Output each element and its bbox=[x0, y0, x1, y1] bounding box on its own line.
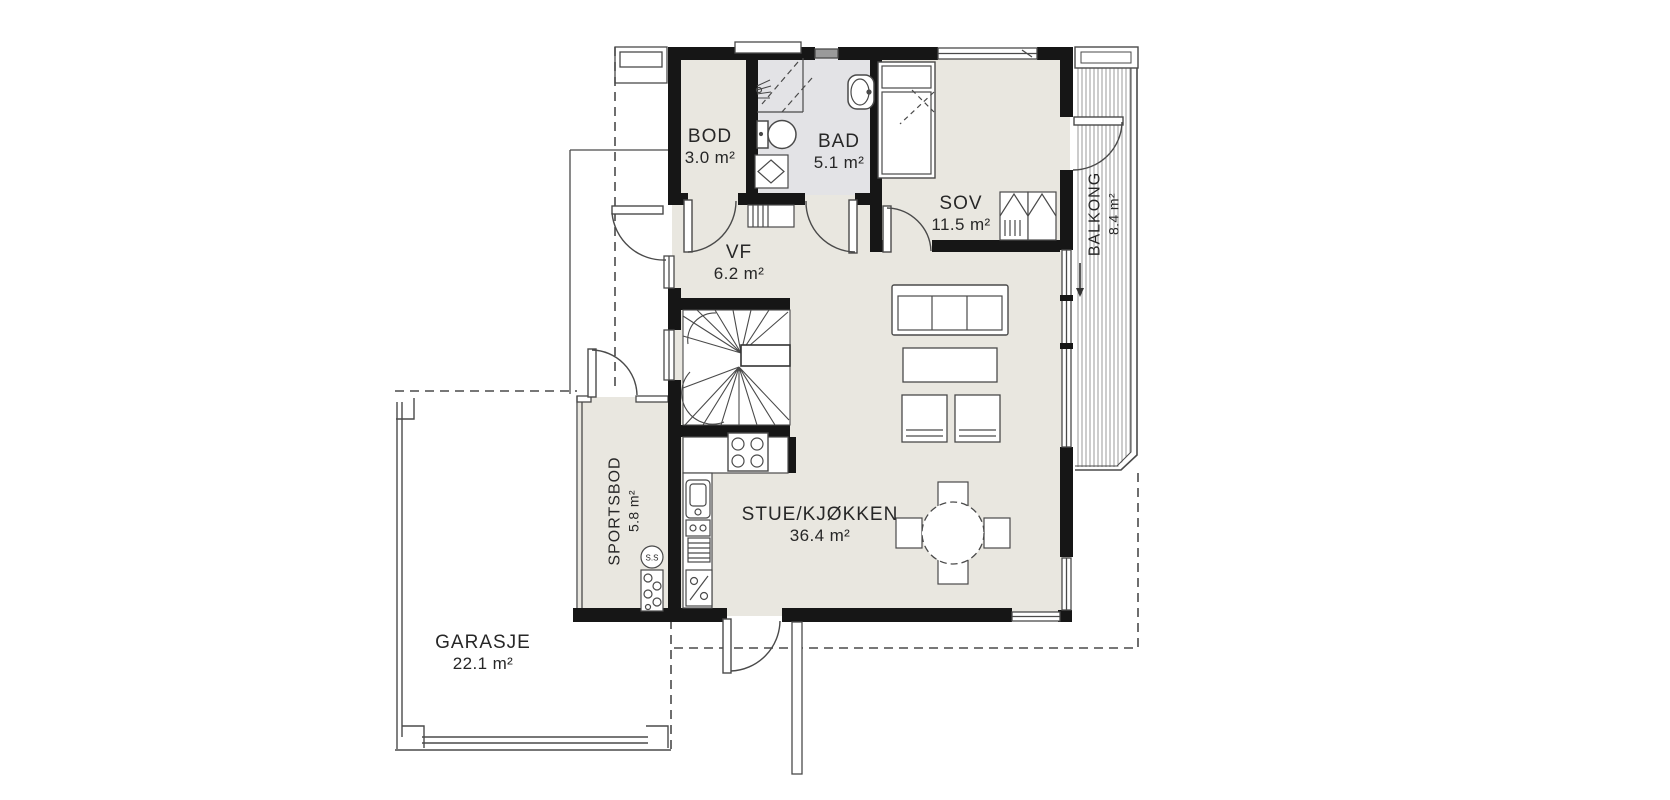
floor-plan-canvas: S.S BOD 3.0 m² BAD 5.1 m² SOV 11.5 m² VF… bbox=[0, 0, 1670, 800]
hall-cabinet bbox=[748, 205, 794, 227]
room-label-stue-kjokken: STUE/KJØKKEN 36.4 m² bbox=[742, 504, 899, 546]
staircase bbox=[682, 310, 790, 425]
room-label-balkong: BALKONG 8.4 m² bbox=[1086, 172, 1121, 256]
coffee-table bbox=[903, 348, 997, 382]
bed bbox=[878, 62, 935, 178]
floor-plan-drawing: S.S bbox=[0, 0, 1670, 800]
entry-sidelight-window bbox=[664, 256, 674, 288]
armchair-left bbox=[902, 395, 947, 442]
oven-unit bbox=[686, 570, 712, 606]
entry-door bbox=[612, 206, 666, 260]
armchair-right bbox=[955, 395, 1000, 442]
living-south-window bbox=[1012, 612, 1060, 621]
sofa bbox=[892, 285, 1008, 335]
stair-window bbox=[664, 330, 674, 380]
room-label-bod: BOD 3.0 m² bbox=[685, 126, 736, 168]
bath-vent-window bbox=[815, 49, 838, 58]
terrace-screen-wall bbox=[792, 622, 802, 774]
balcony bbox=[1075, 47, 1138, 470]
kitchen-sink bbox=[686, 480, 710, 518]
kitchen-exterior-door bbox=[723, 619, 780, 673]
room-label-garasje: GARASJE 22.1 m² bbox=[435, 632, 531, 674]
room-label-vf: VF 6.2 m² bbox=[714, 242, 765, 284]
living-southeast-window bbox=[1062, 558, 1071, 610]
living-east-window-band bbox=[1060, 250, 1073, 447]
slope-arrow-icon bbox=[1076, 263, 1084, 297]
floor-drain-unit bbox=[755, 155, 788, 188]
wardrobe bbox=[1000, 192, 1056, 240]
toilet bbox=[757, 121, 796, 149]
bathroom-sink bbox=[848, 75, 874, 109]
room-label-bad: BAD 5.1 m² bbox=[814, 131, 865, 173]
stove bbox=[728, 433, 768, 471]
room-label-sov: SOV 11.5 m² bbox=[931, 193, 990, 235]
room-label-sportsbod: SPORTSBOD 5.8 m² bbox=[606, 456, 641, 565]
roof-window bbox=[735, 42, 801, 53]
ss-marker-label: S.S bbox=[646, 554, 659, 563]
bedroom-top-window bbox=[938, 48, 1037, 59]
sportsbod-door bbox=[588, 349, 637, 397]
sportsbod-fixtures: S.S bbox=[641, 546, 663, 611]
water-heater bbox=[641, 570, 663, 611]
entry-canopy bbox=[570, 47, 668, 394]
